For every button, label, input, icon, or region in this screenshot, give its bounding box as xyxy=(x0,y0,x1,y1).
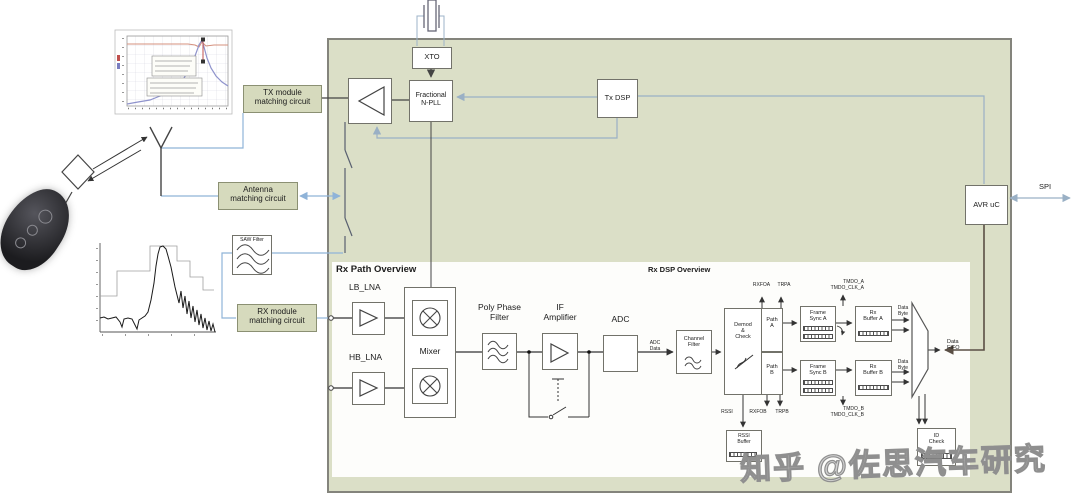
spi-label: SPI xyxy=(1025,183,1065,191)
spectral-mask xyxy=(100,246,214,296)
path-a-label: Path A xyxy=(764,317,780,329)
xto-label: XTO xyxy=(412,53,452,61)
hb-lna-label: HB_LNA xyxy=(349,353,394,363)
filter-response-chart xyxy=(115,30,232,114)
data-fifo-label: Data FIFO xyxy=(947,339,975,351)
frame-sync-b-register-icon xyxy=(803,380,833,385)
chart-annotation-boxes xyxy=(147,56,202,96)
pa-triangle-icon xyxy=(359,87,384,115)
mixer-label: Mixer xyxy=(406,347,454,357)
antenna-matching-label: Antenna matching circuit xyxy=(219,186,297,204)
frame-sync-a-register2-icon xyxy=(803,334,833,339)
hb-lna-triangle-icon xyxy=(360,380,377,396)
demod-slicer-icon xyxy=(735,355,753,369)
mixer-icon-a xyxy=(420,308,440,328)
glyph-layer xyxy=(0,0,1080,503)
lb-lna-input-pin xyxy=(329,316,334,321)
frame-sync-a-label: Frame Sync A xyxy=(801,310,835,322)
rx-buffer-a-register-icon xyxy=(858,331,889,336)
rx-buffer-a-label: Rx Buffer A xyxy=(856,310,890,322)
rx-matching-label: RX module matching circuit xyxy=(238,308,316,326)
demod-check-label: Demod & Check xyxy=(726,322,760,340)
tmdo-b-label: TMDO_B TMDO_CLK_B xyxy=(818,407,864,418)
frame-sync-b-label: Frame Sync B xyxy=(801,364,835,376)
tx-matching-label: TX module matching circuit xyxy=(244,89,321,107)
frame-sync-b-register2-icon xyxy=(803,388,833,393)
trpb-label: TRPB xyxy=(771,410,793,416)
channel-filter-wave-icon xyxy=(685,357,701,369)
rx-path-title: Rx Path Overview xyxy=(336,265,456,276)
if-amp-triangle-icon xyxy=(551,344,568,362)
rxfoa-label: RXFOA xyxy=(748,283,775,289)
mixer-icon-b xyxy=(420,376,440,396)
data-byte-a-label: Data Byte xyxy=(893,306,913,317)
channel-filter-label: Channel Filter xyxy=(677,336,711,348)
trpa-label: TRPA xyxy=(774,283,794,289)
tmdo-a-label: TMDO_A TMDO_CLK_A xyxy=(818,280,864,291)
lb-lna-triangle-icon xyxy=(360,310,377,326)
frame-sync-a-register-icon xyxy=(803,326,833,331)
saw-filter-wave-icon xyxy=(237,245,269,274)
rxfob-label: RXFOB xyxy=(744,410,772,416)
if-amplifier-label: IF Amplifier xyxy=(535,303,585,322)
poly-phase-wave-icon xyxy=(488,341,508,363)
rx-dsp-title: Rx DSP Overview xyxy=(648,266,748,274)
tx-dsp-label: Tx DSP xyxy=(597,94,638,102)
path-b-label: Path B xyxy=(764,364,780,376)
rx-buffer-b-label: Rx Buffer B xyxy=(856,364,890,376)
saw-filter-label: SAW Filter xyxy=(234,238,270,244)
bit-order-arrow-icon xyxy=(837,326,842,335)
rssi-label: RSSI xyxy=(716,410,738,416)
rx-buffer-b-register-icon xyxy=(858,385,889,390)
data-byte-b-label: Data Byte xyxy=(893,360,913,371)
avr-mcu-label: AVR uC xyxy=(965,201,1008,209)
rf-transceiver-block-diagram: { "colors": { "chip_bg": "#dbdfc7", "pan… xyxy=(0,0,1080,503)
saw-spectrum-chart xyxy=(97,243,216,335)
data-mux xyxy=(912,303,928,397)
adc-label: ADC xyxy=(604,315,637,325)
lb-lna-label: LB_LNA xyxy=(349,283,394,293)
hb-lna-input-pin xyxy=(329,386,334,391)
poly-phase-filter-label: Poly Phase Filter xyxy=(471,303,528,322)
adc-data-label: ADC Data xyxy=(644,341,666,352)
pll-label: Fractional N-PLL xyxy=(410,92,452,108)
